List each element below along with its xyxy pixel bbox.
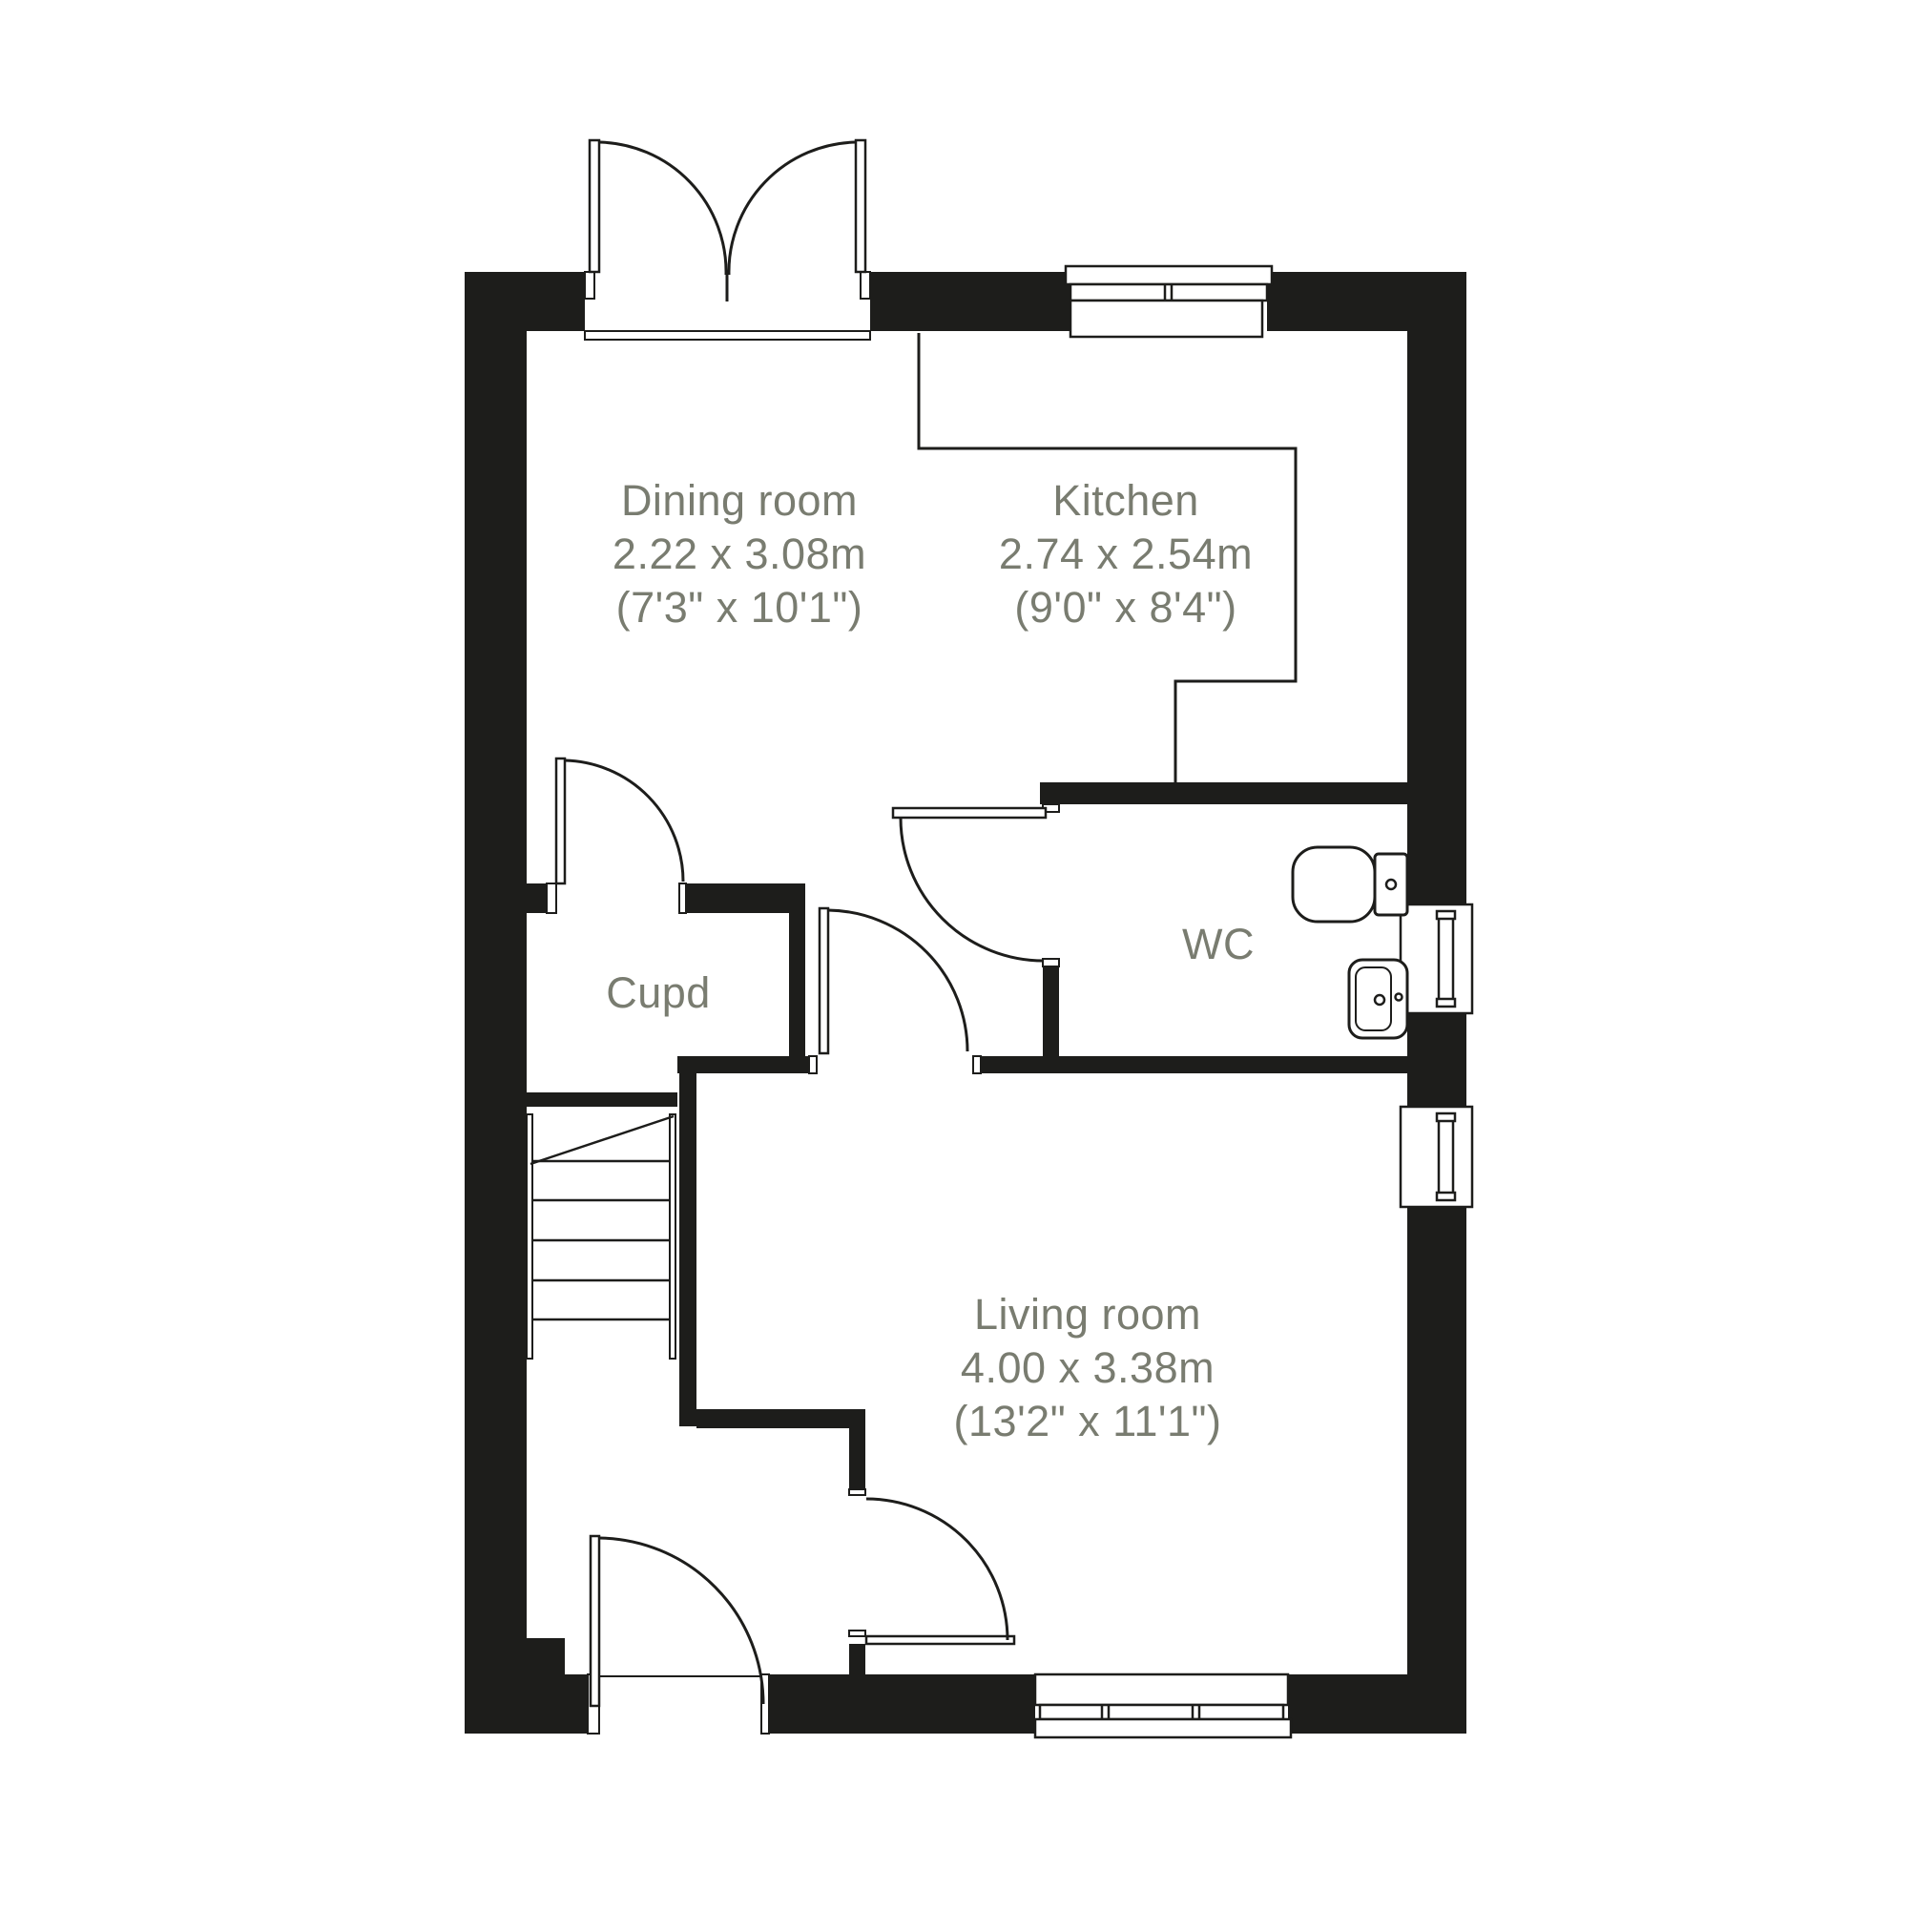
stairs-treads (532, 1161, 670, 1319)
french-door-leaf-left (590, 140, 599, 272)
wall-living-north-right (981, 1056, 1407, 1073)
wall-living-west-upper (849, 1428, 865, 1489)
wc-door-leaf (893, 808, 1046, 818)
french-doors (585, 140, 870, 340)
living-room-door-upper-swing (828, 910, 967, 1051)
living-room-door-lower (866, 1499, 1014, 1644)
wall-right-lower (1407, 1207, 1466, 1734)
cupboard-door-swing (565, 760, 683, 882)
wall-entry-pier (527, 1638, 565, 1674)
living-room-door-upper (820, 908, 967, 1053)
kitchen-dimensions-metric: 2.74 x 2.54m (999, 528, 1253, 581)
window-top-icon (1066, 266, 1272, 337)
dining-room-name: Dining room (613, 474, 866, 528)
toilet-icon (1293, 847, 1407, 922)
wall-left (465, 272, 527, 1734)
stairs-break-line (530, 1116, 674, 1164)
window-wc-icon (1401, 904, 1472, 1013)
french-door-threshold (585, 331, 870, 340)
wall-wc-north (1040, 782, 1407, 804)
living-room-name: Living room (954, 1288, 1222, 1341)
living-door-jamb-east (973, 1056, 981, 1073)
floor-plan-drawing (0, 0, 1932, 1932)
wall-cupboard-bottom (527, 1092, 677, 1107)
wall-stairs-east (679, 1056, 696, 1426)
cupboard-door-jamb-right (679, 883, 686, 913)
wc-door (893, 808, 1046, 961)
entrance-door (591, 1536, 763, 1706)
entrance-door-swing (599, 1538, 763, 1704)
stairs-rail-left (527, 1114, 532, 1359)
wc-door-jamb-bottom (1043, 959, 1059, 966)
wall-bottom-right (1288, 1674, 1466, 1734)
living-room-door-upper-leaf (820, 908, 828, 1053)
living-room-dimensions-imperial: (13'2" x 11'1") (954, 1395, 1222, 1448)
wall-bottom-left (465, 1674, 588, 1734)
stairs-rail-right (670, 1114, 675, 1359)
french-door-swing-right (729, 142, 856, 275)
wc-door-swing (901, 818, 1044, 961)
window-living-south-icon (1035, 1674, 1291, 1737)
cupboard-door (556, 758, 683, 883)
french-door-jamb-left (585, 272, 594, 299)
cupboard-name: Cupd (606, 966, 711, 1020)
entrance-door-leaf (591, 1536, 599, 1706)
living-room-door-lower-swing (866, 1499, 1008, 1640)
wall-cupboard-top (686, 883, 805, 913)
living-lower-door-jamb-top (849, 1489, 865, 1495)
cupboard-label: Cupd (606, 966, 711, 1020)
french-door-jamb-right (861, 272, 870, 299)
living-room-door-lower-leaf (866, 1636, 1014, 1644)
wall-bottom-mid (769, 1674, 1035, 1734)
living-room-dimensions-metric: 4.00 x 3.38m (954, 1341, 1222, 1395)
wc-fixtures (1293, 847, 1407, 1038)
dining-room-dimensions-metric: 2.22 x 3.08m (613, 528, 866, 581)
living-lower-door-jamb-bottom (849, 1631, 865, 1636)
wall-right-mid (1407, 1013, 1466, 1107)
wall-hall-central (789, 913, 805, 1056)
kitchen-dimensions-imperial: (9'0" x 8'4") (999, 581, 1253, 634)
wall-living-west-stub (849, 1644, 865, 1674)
sink-icon (1349, 960, 1407, 1038)
wall-living-sw (696, 1409, 865, 1428)
cupboard-door-leaf (556, 758, 565, 883)
kitchen-name: Kitchen (999, 474, 1253, 528)
wall-right-upper (1407, 272, 1466, 911)
cupboard-door-jamb-left (547, 883, 556, 913)
wall-wc-west-lower (1043, 966, 1059, 1056)
wall-top-left (465, 272, 585, 331)
wc-label: WC (1182, 918, 1255, 971)
wall-top-mid (870, 272, 1070, 331)
living-room-label: Living room 4.00 x 3.38m (13'2" x 11'1") (954, 1288, 1222, 1448)
wall-living-north-left (677, 1056, 809, 1073)
kitchen-label: Kitchen 2.74 x 2.54m (9'0" x 8'4") (999, 474, 1253, 634)
dining-room-label: Dining room 2.22 x 3.08m (7'3" x 10'1") (613, 474, 866, 634)
stairs (527, 1114, 675, 1359)
dining-room-dimensions-imperial: (7'3" x 10'1") (613, 581, 866, 634)
window-living-east-icon (1401, 1107, 1472, 1207)
french-door-leaf-right (856, 140, 865, 272)
floor-plan: Dining room 2.22 x 3.08m (7'3" x 10'1") … (0, 0, 1932, 1932)
french-door-swing-left (599, 142, 726, 275)
living-door-jamb-west (809, 1056, 817, 1073)
wc-name: WC (1182, 918, 1255, 971)
